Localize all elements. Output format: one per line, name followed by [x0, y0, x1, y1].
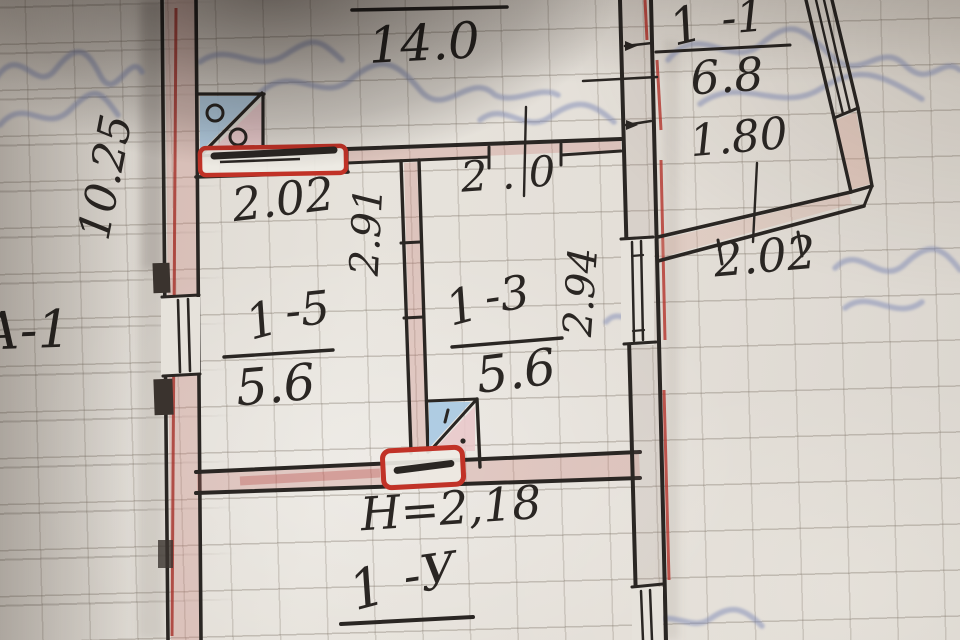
section-label: А-1	[0, 299, 71, 362]
jamb-tick	[404, 317, 423, 318]
window-pier	[153, 379, 173, 416]
room-1-1-number-suffix: -1	[719, 0, 766, 45]
partition-wall	[401, 160, 428, 453]
room-1-4-number-prefix: 1	[342, 553, 391, 623]
right-wall-dim-label: 2.94	[555, 246, 607, 339]
squiggle	[0, 52, 142, 84]
bar-top-room	[352, 7, 507, 10]
stove-dot	[460, 438, 465, 443]
window-symbol-right-bottom	[632, 584, 663, 640]
window-pier	[158, 540, 173, 568]
window-stroke	[632, 255, 643, 256]
wall-red-line	[645, 0, 647, 40]
window-symbol-right	[621, 237, 656, 345]
room-1-5-number-suffix: -5	[282, 280, 332, 338]
squiggle	[835, 249, 960, 271]
stove-stroke	[427, 399, 477, 401]
room-1-5-area-label: 5.6	[233, 353, 317, 418]
partition-dim-label: 2.91	[342, 186, 393, 278]
window-stroke	[621, 237, 653, 239]
left-wall-dim-label: 10.25	[69, 111, 143, 244]
room-1-3-number-suffix: -3	[481, 264, 533, 324]
wall-red-line	[657, 60, 661, 130]
squiggle	[845, 301, 922, 308]
window-stroke	[162, 295, 199, 297]
squiggle	[480, 104, 614, 122]
window-glass	[632, 587, 663, 640]
room-1-1-area-label: 6.8	[689, 47, 766, 106]
squiggle	[200, 42, 342, 62]
annex-inner-dim-label: 1.80	[688, 108, 790, 167]
window-stroke	[624, 342, 656, 344]
top-room-area-label: 14.0	[367, 11, 481, 75]
annex-bottom-dim-label: 2.02	[710, 225, 818, 288]
room-1-3-area-label: 5.6	[473, 337, 559, 404]
stove-stroke	[477, 399, 480, 467]
top-left-dim-label: 2.02	[228, 166, 337, 232]
opening-dim-label: 2.0	[458, 145, 571, 202]
room-1-5-number-prefix: 1	[240, 290, 284, 352]
room-1-3-number-prefix: 1	[440, 276, 484, 338]
window-stroke	[633, 330, 644, 331]
floorplan-photo: 14.0 1 -1 6.8 1.80 2.02 2.02 2.0 2.91 1 …	[0, 0, 960, 640]
window-pier	[152, 263, 170, 294]
room-1-4-number-suffix: -У	[399, 540, 463, 605]
jamb-tick	[401, 242, 420, 243]
floorplan-drawing: 14.0 1 -1 6.8 1.80 2.02 2.02 2.0 2.91 1 …	[0, 0, 960, 640]
height-note-label: H=2,18	[358, 475, 543, 542]
window-stroke	[163, 374, 200, 376]
